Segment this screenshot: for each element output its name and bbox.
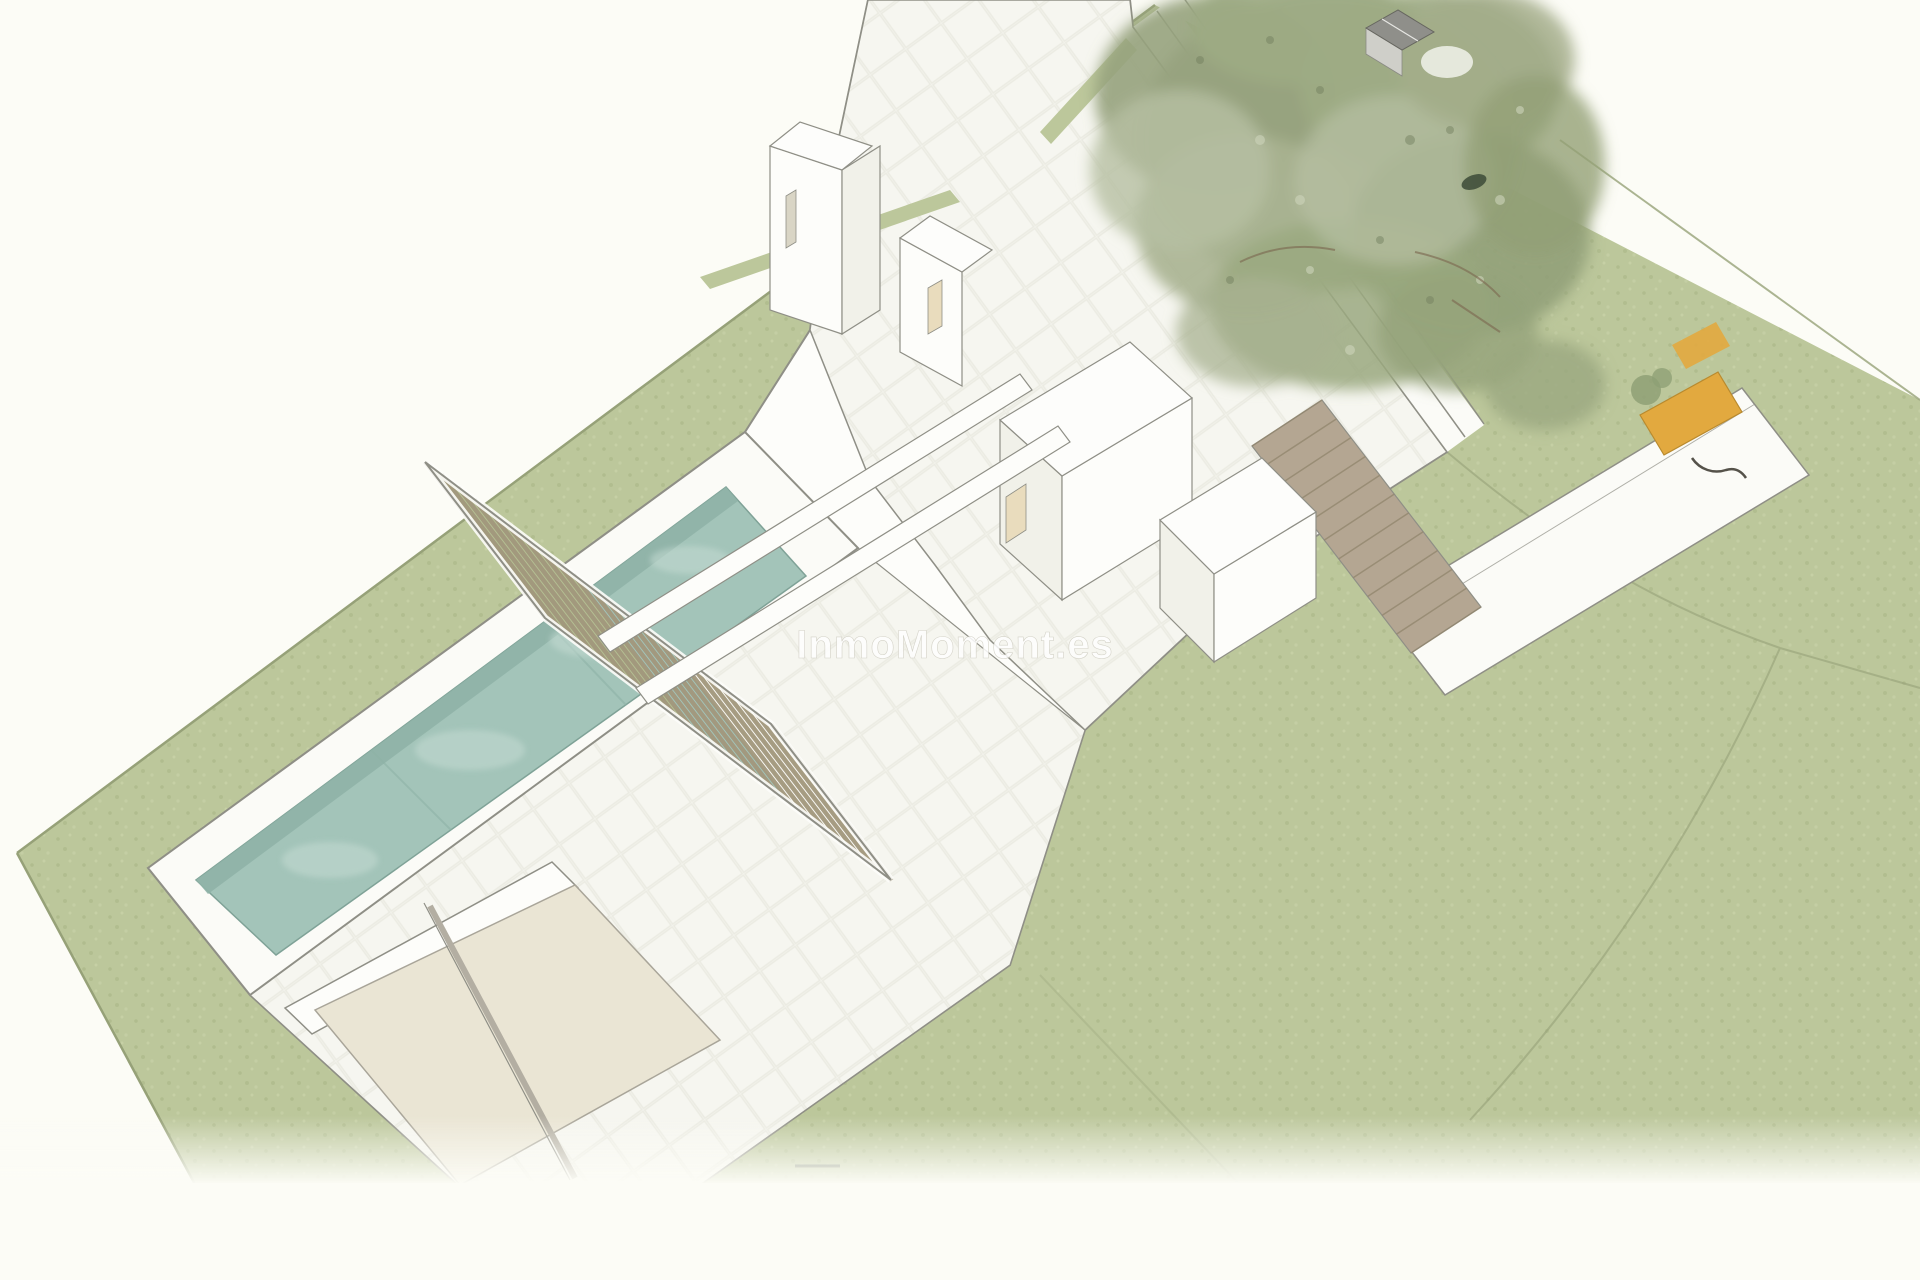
potted-plant bbox=[1652, 368, 1672, 388]
render-canvas: InmoMoment.es bbox=[0, 0, 1920, 1280]
bottom-margin bbox=[0, 1183, 1920, 1280]
watermark-text: InmoMoment.es bbox=[796, 623, 1113, 667]
window-slot bbox=[786, 190, 796, 248]
render-fade bbox=[0, 1115, 1920, 1185]
window-reveal bbox=[928, 280, 942, 334]
